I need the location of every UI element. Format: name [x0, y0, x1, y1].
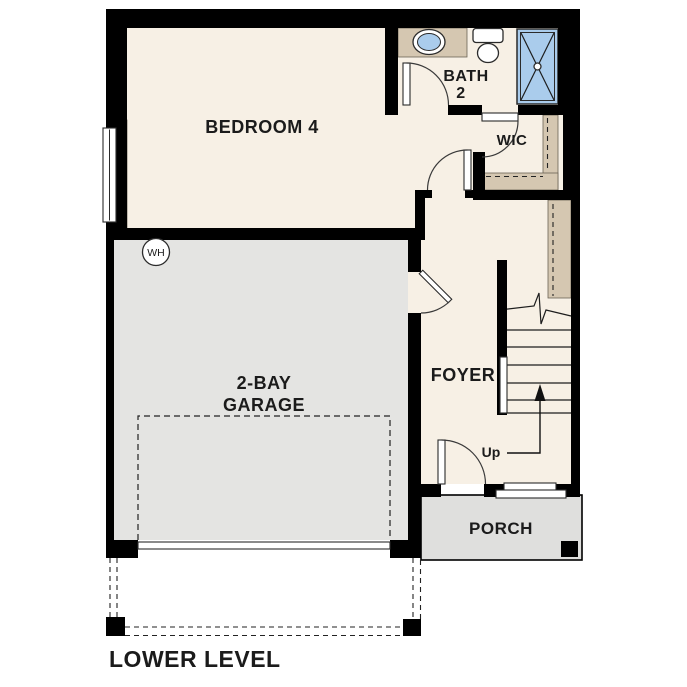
- wall-right-shower: [558, 9, 580, 110]
- toilet-tank: [473, 29, 503, 43]
- wall-top: [106, 9, 580, 28]
- shower-drain: [534, 63, 541, 70]
- wall-hall-west: [415, 198, 425, 240]
- bath-label-line1: BATH: [443, 68, 488, 85]
- floor-plan: WH BEDROOM 4 BATH 2 WIC 2-BAY GARAGE FOY…: [0, 0, 687, 687]
- garage-label-line1: 2-BAY: [237, 373, 292, 393]
- garage-door-jamb-left: [106, 540, 138, 558]
- foyer-label: FOYER: [431, 365, 496, 385]
- bedroom-door-jamb-west: [415, 190, 432, 198]
- driveway-post-right: [403, 619, 421, 636]
- bedroom-door-leaf: [464, 150, 471, 190]
- driveway: [106, 558, 421, 636]
- up-label: Up: [482, 444, 501, 460]
- wall-left-garage: [106, 233, 114, 545]
- stair-rail: [500, 357, 507, 413]
- wall-bedroom-bath: [385, 28, 398, 115]
- bedroom-label: BEDROOM 4: [205, 117, 319, 137]
- floor-plan-page: WH BEDROOM 4 BATH 2 WIC 2-BAY GARAGE FOY…: [0, 0, 687, 687]
- wic-shelf-south: [483, 173, 558, 190]
- front-door-leaf: [438, 440, 445, 484]
- bath-label-line2: 2: [456, 85, 465, 102]
- entry-threshold: [496, 490, 566, 498]
- sink-basin: [418, 34, 441, 51]
- porch-post: [561, 541, 578, 557]
- driveway-post-left: [106, 617, 125, 636]
- bedroom-door-jamb-east: [465, 190, 473, 198]
- coat-closet-shelf: [548, 200, 571, 298]
- bath-door-leaf: [403, 63, 410, 105]
- garage-door: [138, 542, 390, 549]
- wall-right-wic: [563, 110, 580, 200]
- wic-label: WIC: [497, 132, 528, 149]
- wall-bath-south-a: [448, 105, 482, 115]
- wall-garage-foyer-a: [408, 240, 421, 272]
- wall-garage-foyer-b: [408, 313, 421, 558]
- wall-foyer-south-a: [421, 484, 441, 497]
- garage-label-line2: GARAGE: [223, 395, 305, 415]
- wic-door-leaf: [482, 113, 518, 121]
- water-heater-symbol: WH: [143, 239, 170, 266]
- water-heater-label: WH: [147, 247, 165, 259]
- porch-label: PORCH: [469, 519, 533, 538]
- plan-title: LOWER LEVEL: [109, 646, 281, 672]
- toilet-icon: [478, 44, 499, 63]
